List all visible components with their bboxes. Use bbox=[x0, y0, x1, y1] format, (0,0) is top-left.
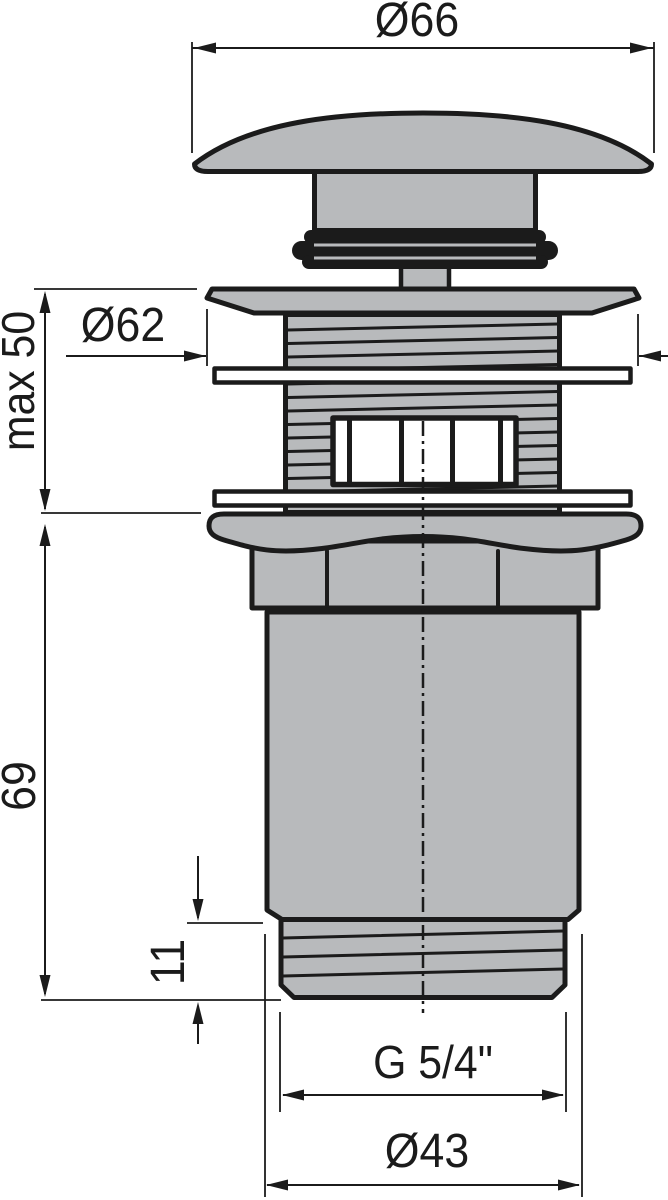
label-outlet-diameter: Ø43 bbox=[385, 1128, 469, 1176]
drain-valve-drawing-page: Ø66 Ø62 max 50 69 11 G 5/4" Ø43 bbox=[0, 0, 668, 1200]
label-flange-diameter: Ø62 bbox=[81, 302, 165, 350]
top-flange bbox=[207, 289, 639, 313]
label-max-mount-thickness: max 50 bbox=[0, 311, 41, 451]
technical-drawing bbox=[0, 0, 668, 1200]
overflow-window bbox=[333, 418, 516, 485]
label-cap-diameter: Ø66 bbox=[375, 0, 459, 45]
basin-plate-upper bbox=[215, 369, 631, 383]
label-body-length: 69 bbox=[0, 761, 44, 811]
label-thread-size: G 5/4" bbox=[373, 1039, 493, 1085]
label-thread-length: 11 bbox=[145, 939, 193, 985]
seal-rings bbox=[292, 230, 558, 269]
cap-neck bbox=[315, 170, 536, 231]
cap-dome bbox=[195, 113, 652, 172]
dim-body-length bbox=[40, 524, 282, 1000]
cap-assembly bbox=[195, 113, 652, 292]
dim-thread-length bbox=[187, 856, 263, 1044]
